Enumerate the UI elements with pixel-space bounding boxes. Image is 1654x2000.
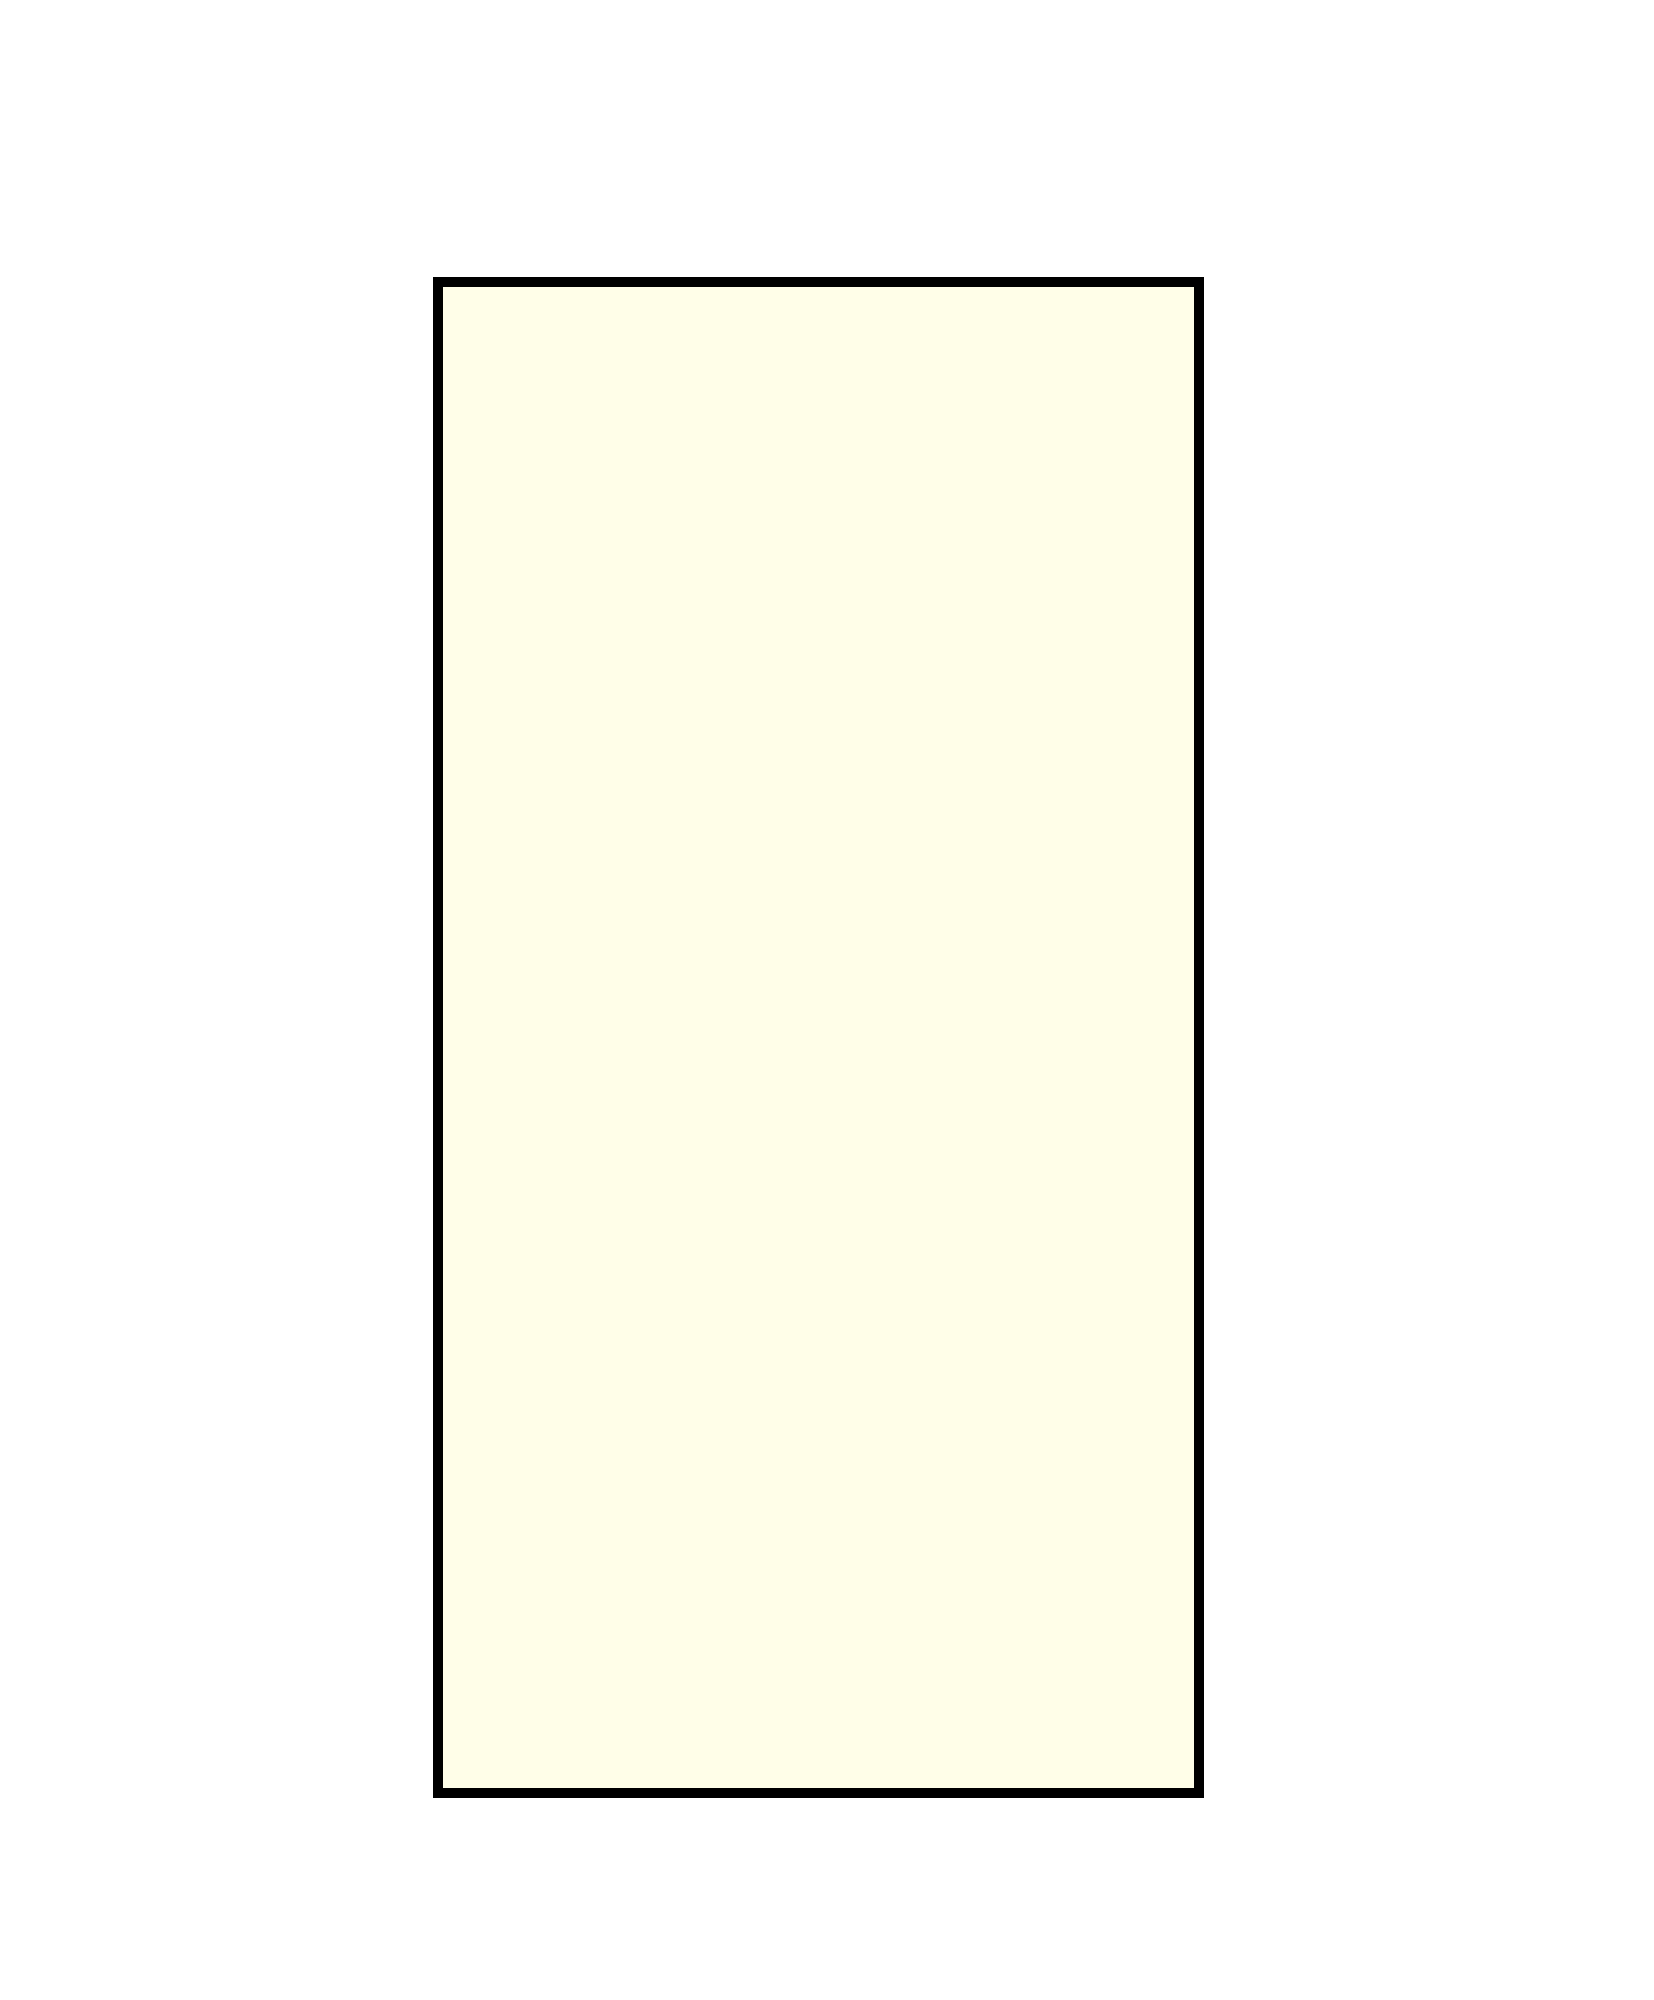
page-background — [0, 0, 1654, 2000]
bordered-rectangle — [433, 277, 1204, 1798]
